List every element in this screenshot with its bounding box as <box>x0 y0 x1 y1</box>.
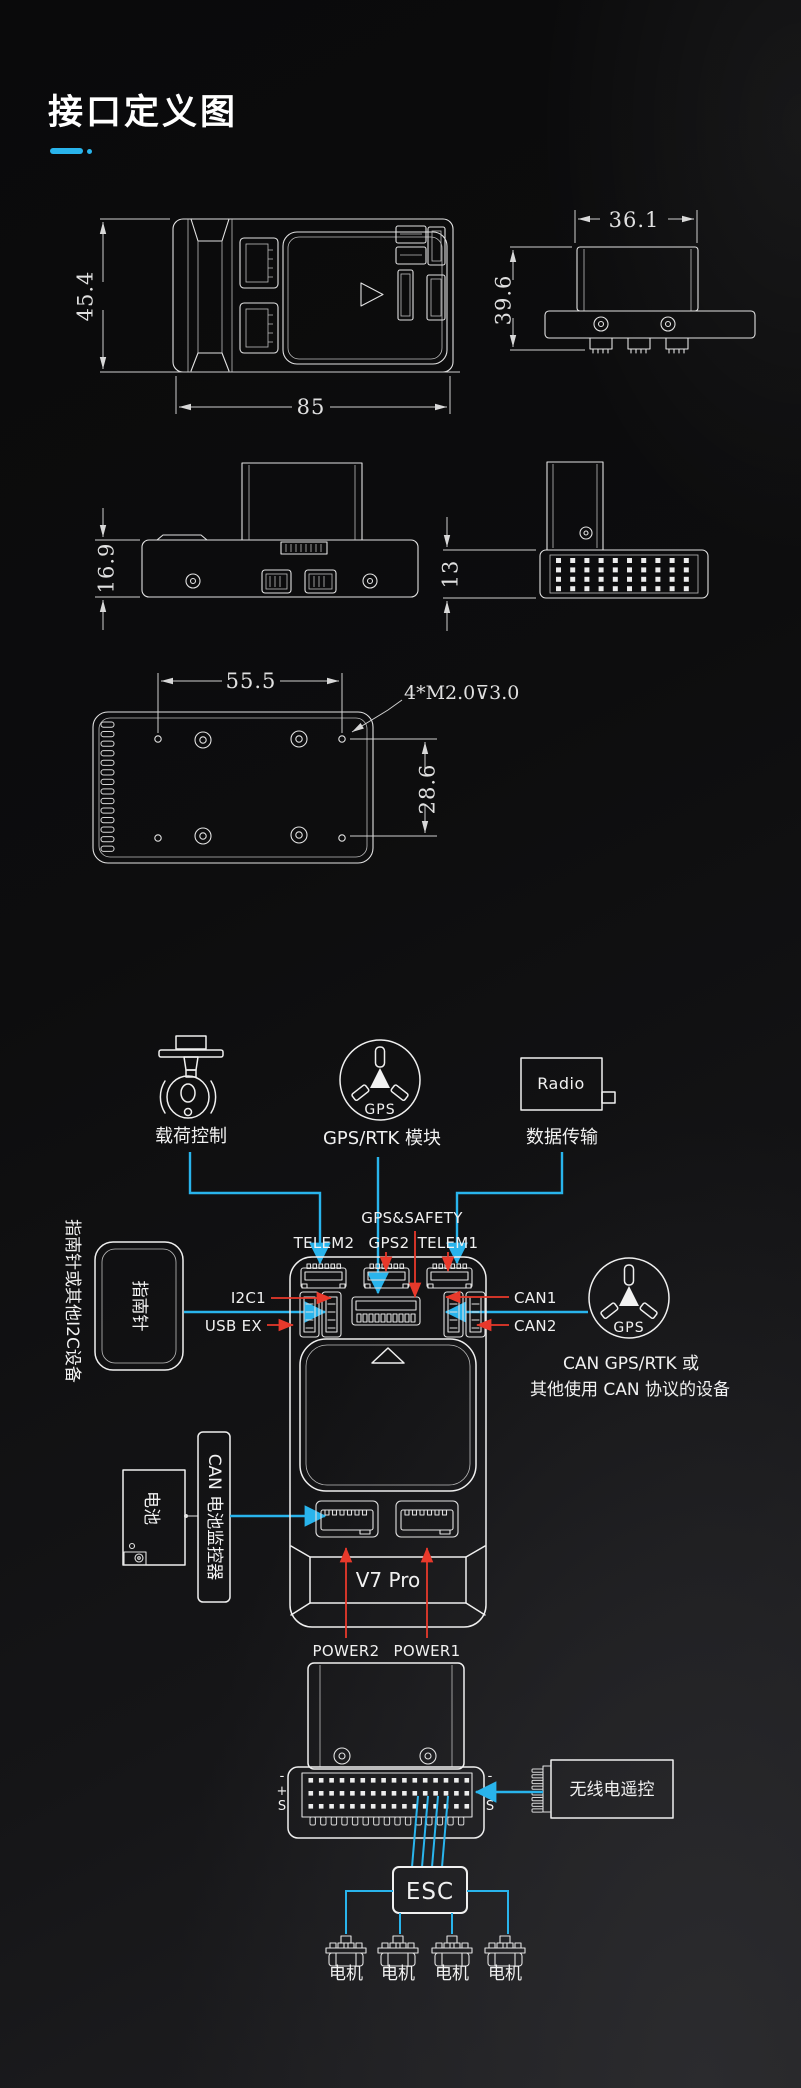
gps-safety-connector <box>352 1297 420 1325</box>
radio-control-box: 无线电遥控 <box>532 1760 673 1818</box>
brand-arrow-logo <box>361 283 383 306</box>
can1-connector <box>444 1292 463 1337</box>
label-power1: POWER1 <box>394 1642 461 1660</box>
power1-connector <box>396 1501 458 1537</box>
compass-box-text: 指南针 <box>129 1281 149 1332</box>
power2-connector <box>316 1501 378 1537</box>
battery-monitor-text: CAN 电池监控器 <box>204 1454 224 1581</box>
label-telem2: TELEM2 <box>293 1234 355 1252</box>
gimbal-camera-icon <box>159 1036 223 1118</box>
top-view-drawing: 45.4 85 <box>74 219 461 419</box>
label-can-gps-line2: 其他使用 CAN 协议的设备 <box>530 1379 730 1400</box>
label-can-gps-line1: CAN GPS/RTK 或 <box>563 1354 699 1374</box>
label-can2: CAN2 <box>514 1317 557 1335</box>
label-motor-3: 电机 <box>435 1964 469 1984</box>
dim-rear-height: 13 <box>439 560 463 589</box>
front-view-connectors <box>262 570 336 593</box>
esc-text: ESC <box>406 1879 454 1905</box>
radio-box: Radio <box>521 1058 615 1110</box>
battery-box-text: 电池 <box>141 1491 161 1525</box>
dim-top-width: 85 <box>297 395 326 419</box>
model-name: V7 Pro <box>356 1568 421 1592</box>
page: 接口定义图 GPS <box>0 0 801 2088</box>
label-motor-2: 电机 <box>381 1964 415 1984</box>
dim-hole-height: 28.6 <box>416 764 440 815</box>
top-view-side-connectors <box>396 226 445 320</box>
front-view-drawing: 16.9 <box>95 463 419 630</box>
dim-side-height: 39.6 <box>492 275 516 326</box>
label-can1: CAN1 <box>514 1289 557 1307</box>
telem1-connector <box>427 1264 472 1288</box>
esc-box: ESC <box>393 1867 467 1913</box>
lines-pins-to-esc <box>412 1796 448 1867</box>
bottom-view-drawing: 55.5 4*M2.0⊽3.0 28.6 <box>93 669 519 863</box>
pin-grid <box>309 1778 470 1809</box>
pin-label-minus-right: - <box>488 1769 493 1784</box>
rear-view-drawing: 13 <box>439 462 709 631</box>
pin-label-plus-left: + <box>277 1784 288 1799</box>
label-compass-side-note: 指南针或其他I2C设备 <box>62 1219 82 1383</box>
top-view-usb-connectors <box>240 238 278 353</box>
diagram-canvas: GPS <box>0 0 801 2088</box>
label-telem1: TELEM1 <box>417 1234 479 1252</box>
compass-box: 指南针 <box>95 1242 183 1370</box>
controller-back-view: - + S - + S <box>277 1663 496 1838</box>
thread-note: 4*M2.0⊽3.0 <box>404 682 519 704</box>
dim-top-height: 45.4 <box>74 271 98 322</box>
dim-hole-span: 55.5 <box>226 669 277 693</box>
radio-box-text: Radio <box>537 1074 584 1093</box>
label-data-link: 数据传输 <box>526 1127 598 1148</box>
label-usb-ex: USB EX <box>205 1317 262 1335</box>
side-view-drawing: 36.1 39.6 <box>492 208 756 353</box>
can2-connector <box>466 1292 485 1337</box>
label-gps2: GPS2 <box>369 1234 410 1252</box>
pin-label-minus-left: - <box>280 1769 285 1784</box>
battery-box: 电池 <box>123 1470 185 1565</box>
pin-comb <box>310 1817 464 1825</box>
label-gps-safety: GPS&SAFETY <box>361 1209 463 1227</box>
label-power2: POWER2 <box>313 1642 380 1660</box>
pin-label-signal-right: S <box>486 1799 494 1814</box>
controller-front-view: V7 Pro <box>290 1257 486 1627</box>
pin-label-signal-left: S <box>278 1799 286 1814</box>
rear-pin-grid <box>556 558 689 591</box>
heatsink-fins <box>101 722 114 851</box>
label-motor-1: 电机 <box>329 1964 363 1984</box>
rc-connector-comb <box>532 1769 543 1812</box>
dim-base-height: 16.9 <box>95 543 119 594</box>
radio-control-text: 无线电遥控 <box>570 1780 655 1800</box>
label-payload: 载荷控制 <box>155 1126 227 1147</box>
dim-side-width: 36.1 <box>609 208 660 232</box>
brand-arrow-logo <box>372 1348 404 1363</box>
telem2-connector <box>301 1264 346 1288</box>
label-motor-4: 电机 <box>488 1964 522 1984</box>
battery-monitor-box: CAN 电池监控器 <box>198 1432 230 1602</box>
label-i2c1: I2C1 <box>231 1289 266 1307</box>
label-gps-rtk: GPS/RTK 模块 <box>323 1128 441 1149</box>
side-view-connectors <box>590 338 688 353</box>
